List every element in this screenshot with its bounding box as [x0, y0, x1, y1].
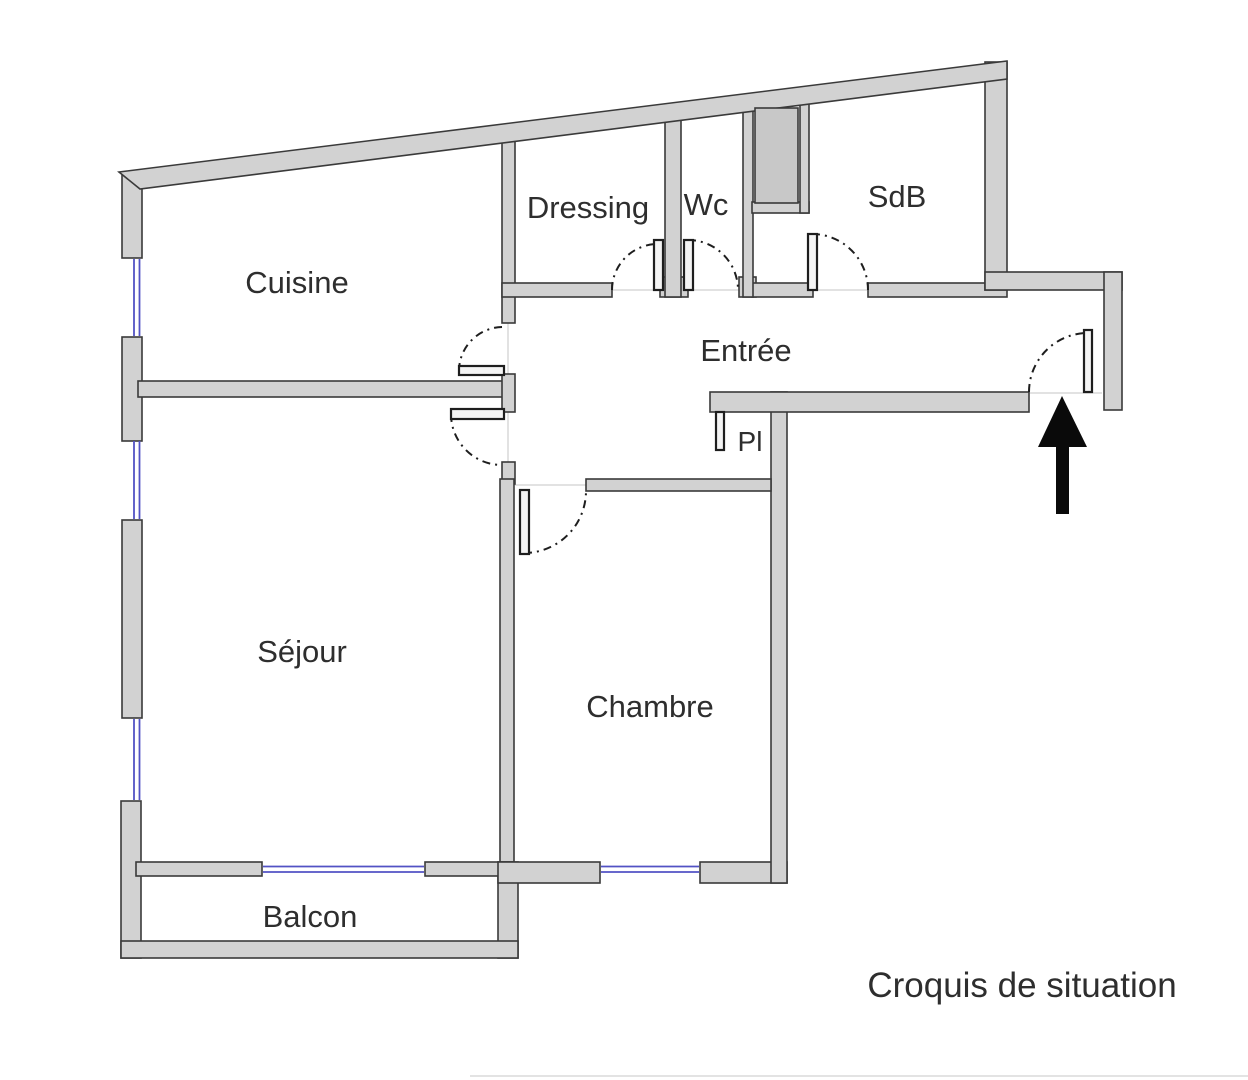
door-arc-entrance [1029, 333, 1088, 392]
wall-chambre-north [586, 479, 771, 491]
door-arc-sdb [812, 234, 868, 290]
door-arc-sejour [451, 414, 502, 465]
windows [134, 259, 699, 872]
room-label-placard: Pl [738, 426, 763, 457]
window-sejour-west-upper [134, 441, 140, 519]
wall-extension-right [1104, 272, 1122, 410]
wall-corridor-north-a [502, 283, 612, 297]
wall-dressing-wc-divider [665, 119, 681, 297]
door-leaf-entrance [1084, 330, 1092, 392]
wall-top-slanted [119, 61, 1007, 189]
window-cuisine-west [134, 259, 140, 336]
room-label-dressing: Dressing [527, 190, 649, 225]
wall-corridor-north-c [752, 283, 813, 297]
room-label-sejour: Séjour [257, 634, 347, 669]
room-label-chambre: Chambre [586, 689, 714, 724]
door-arc-cuisine [459, 327, 503, 371]
wall-chambre-south-left [498, 862, 600, 883]
wall-left-bottom-balcony [121, 801, 141, 958]
plan-caption: Croquis de situation [867, 966, 1176, 1005]
door-leaf-placard [716, 412, 724, 450]
door-leaf-wc [684, 240, 693, 290]
door-arc-chambre [524, 491, 586, 553]
wall-extension-top [985, 272, 1122, 290]
window-chambre-south [601, 867, 699, 873]
wall-entree-south [710, 392, 1029, 412]
room-label-balcon: Balcon [263, 899, 358, 934]
door-thresholds [508, 290, 1102, 485]
entrance-arrow-shaft [1056, 447, 1069, 514]
window-sejour-south [263, 867, 424, 873]
door-leaf-sejour [451, 409, 504, 419]
door-leaf-cuisine [459, 366, 504, 375]
floor-plan-canvas: Cuisine Dressing Wc SdB Entrée Pl Séjour… [0, 0, 1248, 1080]
wall-balcony-bottom [121, 941, 518, 958]
door-arc-dressing [612, 244, 658, 290]
room-label-entree: Entrée [700, 333, 791, 368]
wall-left-low [122, 520, 142, 718]
door-leaf-dressing [654, 240, 663, 290]
wall-sejour-south-left [136, 862, 262, 876]
room-label-sdb: SdB [868, 179, 927, 214]
wall-sdb-east [985, 62, 1007, 290]
wall-cuisine-sejour-divider [138, 381, 503, 397]
entrance-arrow-head [1038, 396, 1087, 447]
window-sejour-west-lower [134, 719, 140, 800]
shaft-block [755, 108, 798, 203]
wall-chambre-east [771, 392, 787, 883]
wall-entree-west-a [502, 374, 515, 412]
room-label-wc: Wc [684, 187, 729, 222]
floor-plan-page: Cuisine Dressing Wc SdB Entrée Pl Séjour… [0, 0, 1248, 1080]
wall-shaft-niche-right [800, 100, 809, 213]
door-arc-wc [688, 240, 738, 290]
entrance-arrow-icon [1038, 396, 1087, 514]
wall-sejour-chambre-divider [500, 479, 514, 869]
room-label-cuisine: Cuisine [245, 265, 348, 300]
door-leaf-sdb [808, 234, 817, 290]
door-leaf-chambre [520, 490, 529, 554]
